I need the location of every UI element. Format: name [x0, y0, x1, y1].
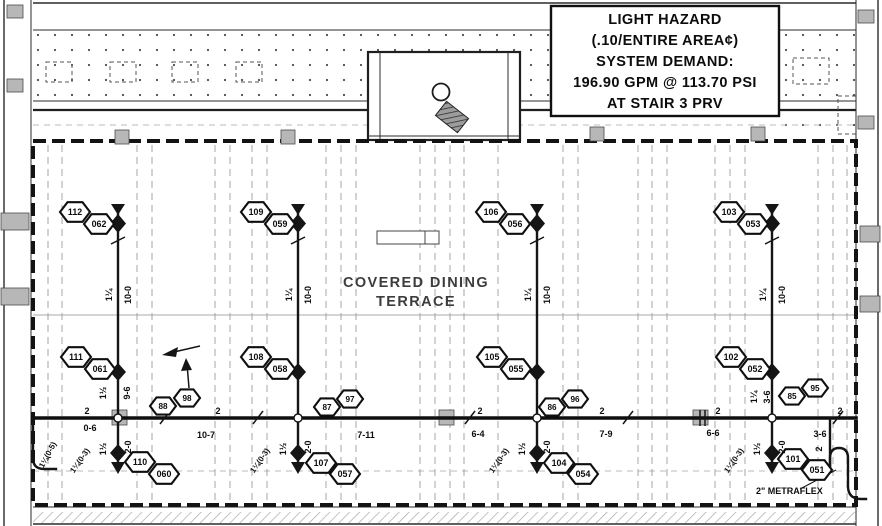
dim-label: 1½	[278, 442, 288, 455]
column-marker	[1, 213, 29, 230]
node-tag-label: 061	[93, 364, 108, 374]
node-tag-label: 060	[157, 469, 172, 479]
sprinkler-head-icon	[111, 462, 125, 474]
circle-symbol	[433, 84, 450, 101]
node-tag-label: 106	[484, 207, 499, 217]
node-tag-label: 057	[338, 469, 353, 479]
bottom-wall-hatch	[33, 512, 856, 523]
dim-label: 2-0	[123, 440, 133, 453]
column-marker	[7, 5, 23, 18]
flow-arrow	[174, 346, 200, 352]
flow-arrow	[162, 347, 178, 357]
node-tag-label: 86	[547, 403, 557, 412]
ceiling-dot-texture	[779, 101, 855, 140]
dim-label: 1½	[752, 442, 762, 455]
node-tag: 056	[500, 214, 530, 234]
node-tag: 058	[265, 359, 295, 379]
sprinkler-head-icon	[291, 204, 305, 215]
node-tag-label: 104	[552, 458, 567, 468]
node-tag-label: 056	[508, 219, 523, 229]
dimension-labels: 2222220-610-77-116-47-96-63-61¼10-01¼10-…	[37, 286, 842, 475]
room-label: COVERED DINING TERRACE	[343, 275, 489, 310]
node-tag: 057	[330, 464, 360, 484]
pipe-junction	[114, 414, 122, 422]
dim-label: 3-6	[762, 390, 772, 403]
node-tag-label: 052	[748, 364, 763, 374]
dim-label: 2	[599, 406, 604, 416]
column-marker	[860, 226, 880, 242]
node-tag-label: 103	[722, 207, 737, 217]
node-tag: 107	[306, 453, 336, 473]
room-label-line2: TERRACE	[376, 294, 456, 310]
node-tags: 1120621090591060561030531110611080581050…	[60, 202, 832, 484]
node-tag-label: 98	[182, 394, 192, 403]
dim-label: 2-0	[303, 440, 313, 453]
node-tag-label: 102	[724, 352, 739, 362]
node-tag-label: 107	[314, 458, 329, 468]
node-tag-label: 95	[810, 384, 820, 393]
node-tag: 88	[150, 397, 176, 414]
dim-label: 10-0	[777, 286, 787, 304]
node-tag-label: 87	[322, 403, 332, 412]
system-demand-line: LIGHT HAZARD	[608, 12, 722, 28]
dim-label: 2	[84, 406, 89, 416]
node-tag-label: 111	[69, 352, 83, 362]
node-tag-label: 054	[576, 469, 591, 479]
dim-label: 0-6	[83, 423, 96, 433]
dim-label: 2	[215, 406, 220, 416]
node-tag: 062	[84, 214, 114, 234]
system-demand-line: AT STAIR 3 PRV	[607, 96, 723, 112]
metraflex-loop-pipe	[830, 448, 866, 499]
floor-plan-canvas: 1120621090591060561030531110611080581050…	[0, 0, 882, 526]
dim-label: 7-11	[357, 430, 375, 440]
flow-arrows	[162, 346, 200, 388]
coverage-boundary	[33, 141, 856, 505]
node-tag: 103	[714, 202, 744, 222]
node-tag: 86	[539, 398, 565, 415]
dim-label: 1¼(0-5)	[37, 440, 58, 469]
sprinkler-head-icon	[765, 204, 779, 215]
dim-label: 1¼	[284, 287, 294, 301]
pipe-junction	[768, 414, 776, 422]
flow-arrow	[181, 358, 192, 371]
node-tag-label: 97	[345, 395, 355, 404]
node-tag: 054	[568, 464, 598, 484]
node-tag-label: 108	[249, 352, 264, 362]
dim-label: 2	[814, 446, 824, 451]
node-tag: 108	[241, 347, 271, 367]
column-marker	[281, 130, 295, 144]
sprinkler-head-icon	[765, 462, 779, 474]
node-tag-label: 051	[810, 465, 825, 475]
system-demand-line: 196.90 GPM @ 113.70 PSI	[573, 75, 757, 91]
node-tag-label: 058	[273, 364, 288, 374]
dim-label: 3-6	[813, 429, 826, 439]
node-tag: 055	[501, 359, 531, 379]
sprinkler-head-icon	[530, 462, 544, 474]
node-tag-label: 053	[746, 219, 761, 229]
node-tag: 051	[802, 460, 832, 480]
node-tag-label: 110	[133, 457, 147, 467]
node-tag: 053	[738, 214, 768, 234]
dim-label: 1¼(0-3)	[722, 446, 746, 474]
node-tag: 061	[85, 359, 115, 379]
column-marker	[115, 130, 129, 144]
node-tag-label: 062	[92, 219, 107, 229]
dim-label: 1¼	[523, 287, 533, 301]
node-tag: 060	[149, 464, 179, 484]
dim-label: 1¼	[749, 389, 759, 403]
node-tag: 97	[337, 390, 363, 407]
node-tag-label: 85	[787, 392, 797, 401]
node-tag-label: 109	[249, 207, 264, 217]
dim-label: 1½	[98, 442, 108, 455]
dim-label: 1½	[98, 386, 108, 399]
pipe-junction	[533, 414, 541, 422]
node-tag: 96	[562, 390, 588, 407]
dim-label: 2-0	[542, 440, 552, 453]
node-tag-label: 105	[485, 352, 500, 362]
stair-vestibule	[368, 52, 520, 140]
metraflex-label: 2" METRAFLEX	[756, 486, 823, 496]
sprinkler-head-icon	[530, 204, 544, 215]
dim-label: 10-0	[542, 286, 552, 304]
system-demand-line: (.10/ENTIRE AREA¢)	[592, 33, 739, 49]
node-tag-label: 101	[786, 454, 801, 464]
dim-label: 10-0	[123, 286, 133, 304]
node-tag: 111	[61, 347, 91, 367]
dim-label: 10-7	[197, 430, 215, 440]
dim-label: 9-6	[122, 386, 132, 399]
node-tag-label: 112	[68, 207, 82, 217]
column-marker	[860, 296, 880, 312]
node-tag: 102	[716, 347, 746, 367]
node-tag-label: 059	[273, 219, 288, 229]
column-marker	[858, 10, 874, 23]
sprinkler-plan-drawing: 1120621090591060561030531110611080581050…	[0, 0, 882, 526]
dim-label: 6-6	[706, 428, 719, 438]
equipment-tag-box	[377, 231, 439, 244]
system-demand-line: SYSTEM DEMAND:	[596, 54, 734, 70]
node-tag: 87	[314, 398, 340, 415]
sprinkler-head-icon	[529, 363, 545, 381]
node-tag: 98	[174, 389, 200, 406]
node-tag: 109	[241, 202, 271, 222]
dim-label: 1½	[517, 442, 527, 455]
column-marker	[1, 288, 29, 305]
node-tag: 106	[476, 202, 506, 222]
node-tag: 104	[544, 453, 574, 473]
node-tag: 112	[60, 202, 90, 222]
column-marker	[751, 127, 765, 141]
dim-label: 2	[477, 406, 482, 416]
column-marker	[7, 79, 23, 92]
dim-label: 2	[837, 406, 842, 416]
sprinkler-head-icon	[111, 204, 125, 215]
node-tag-label: 88	[158, 402, 168, 411]
dim-label: 1¼(0-3)	[68, 446, 92, 474]
sprinkler-head-icon	[291, 462, 305, 474]
dim-label: 2-0	[777, 440, 787, 453]
node-tag: 95	[802, 379, 828, 396]
dim-label: 1¼	[104, 287, 114, 301]
column-marker	[590, 127, 604, 141]
node-tag: 110	[125, 452, 155, 472]
node-tag-label: 96	[570, 395, 580, 404]
column-marker	[858, 116, 874, 129]
dim-label: 7-9	[599, 429, 612, 439]
node-tag: 052	[740, 359, 770, 379]
system-demand-box: LIGHT HAZARD (.10/ENTIRE AREA¢) SYSTEM D…	[551, 6, 779, 116]
dim-label: 1¼(0-3)	[487, 446, 511, 474]
dim-label: 2	[715, 406, 720, 416]
sprinkler-head-icon	[529, 214, 545, 233]
node-tag: 059	[265, 214, 295, 234]
room-label-line1: COVERED DINING	[343, 275, 489, 291]
dim-label: 10-0	[303, 286, 313, 304]
grid-lines	[33, 145, 856, 503]
dim-label: 6-4	[471, 429, 484, 439]
dim-label: 1¼	[758, 287, 768, 301]
node-tag: 85	[779, 387, 805, 404]
node-tag-label: 055	[509, 364, 524, 374]
pipe-junction	[294, 414, 302, 422]
node-tag: 105	[477, 347, 507, 367]
